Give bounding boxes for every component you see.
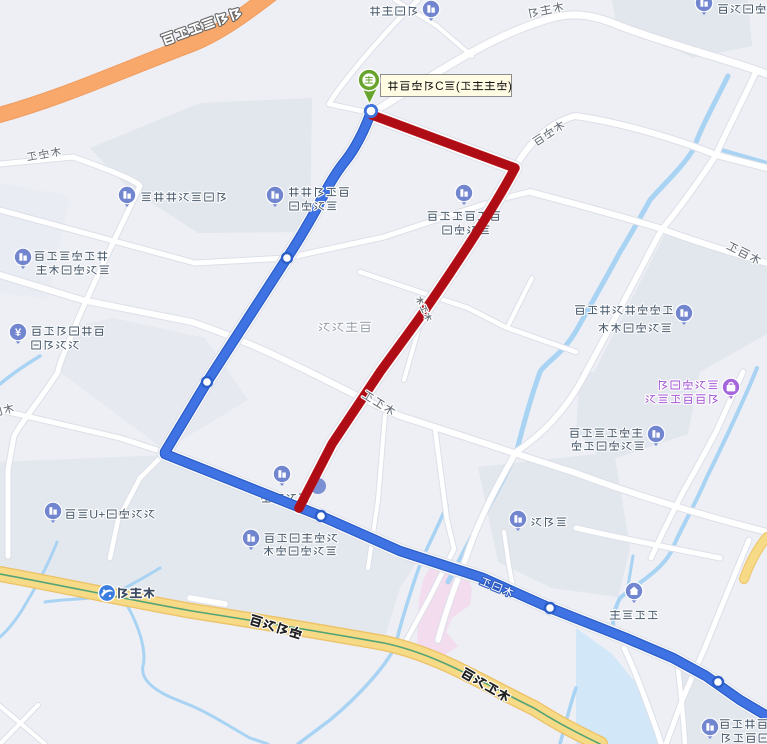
svg-text:(: ( (456, 79, 460, 93)
svg-text:+: + (98, 507, 105, 521)
svg-text:): ) (508, 79, 512, 93)
svg-text:¥: ¥ (15, 327, 22, 339)
svg-text:U: U (89, 507, 98, 521)
svg-text:C: C (435, 79, 444, 93)
